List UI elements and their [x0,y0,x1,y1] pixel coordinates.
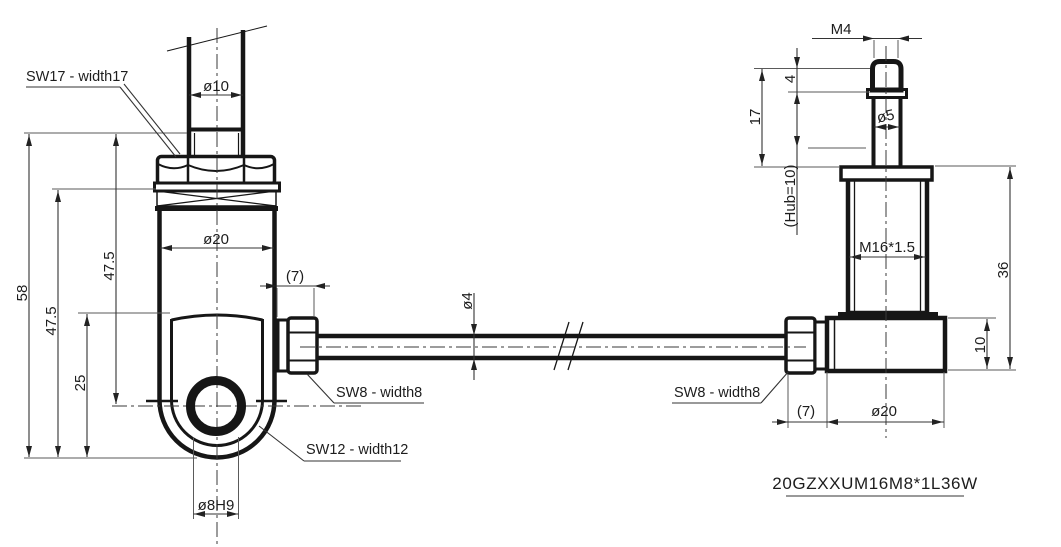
label-text-sw8-left: SW8 - width8 [336,385,422,401]
rod-end-side-view [146,26,317,458]
dim-text-hex-length-left: (7) [286,268,304,285]
dim-text-rod-to-hole-center: 47.5 [101,251,118,280]
cable-fitting-left-sw8 [278,318,317,373]
label-text-sw8-right: SW8 - width8 [674,385,760,401]
dim-text-block-height: 10 [972,337,989,354]
dim-hex-length-right-and-block-diameter: (7) ø20 [772,403,944,425]
dim-text-pin-extension: 17 [747,109,764,126]
dim-text-block-diameter: ø20 [871,403,897,420]
dim-hole-center-offset-25: 25 [72,314,90,457]
part-number: 20GZXXUM16M8*1L36W [772,474,977,493]
actuator-side-view [786,62,945,374]
dim-hex-length-left: (7) [260,268,330,289]
drawing-canvas: ø10 58 47.5 25 47.5 ø20 (7) [0,0,1061,547]
dim-text-cable-diameter: ø4 [459,292,476,310]
dim-text-shank-length: 47.5 [43,306,60,335]
dim-text-tip-thread: M4 [831,21,852,38]
dim-overall-length-58: 58 [14,134,32,457]
dim-pin-extension-17: 17 [747,69,765,166]
dim-text-body-diameter: ø20 [203,231,229,248]
cable-fitting-right-sw8 [786,318,827,373]
dim-housing-length-36: 36 [995,167,1013,369]
dim-housing-thread: M16*1.5 [849,239,926,260]
centerlines [112,28,886,545]
label-text-sw12: SW12 - width12 [306,442,408,458]
dim-text-housing-thread: M16*1.5 [859,239,915,256]
technical-drawing-sheet: ø10 58 47.5 25 47.5 ø20 (7) [0,0,1061,547]
hex-nut-sw17 [158,157,275,185]
part-number-block: 20GZXXUM16M8*1L36W [772,474,977,496]
dim-text-overall-length: 58 [14,285,31,302]
dim-text-housing-length: 36 [995,262,1012,279]
dim-shank-length-47-5: 47.5 [43,190,61,457]
cable-rod [317,322,788,370]
label-text-sw17: SW17 - width17 [26,69,128,85]
dim-text-stroke: (Hub=10) [782,165,799,228]
dim-block-height-10: 10 [972,319,990,369]
dim-text-hex-length-right: (7) [797,403,815,420]
dim-text-pin-diameter: ø5 [875,106,896,126]
label-wrench-flats-17: SW17 - width17 [26,69,180,157]
label-wrench-flats-8-right: SW8 - width8 [672,371,789,403]
dim-body-diameter-left: ø20 [160,231,274,251]
dim-tip-length-4: 4 (Hub=10) [782,48,800,235]
dim-text-tip-length: 4 [782,75,799,83]
dim-hole-bore: ø8H9 [194,497,239,517]
dim-rod-to-hole-center-47-5: 47.5 [101,134,119,404]
dim-text-hole-bore: ø8H9 [198,497,235,514]
label-wrench-flats-8-left: SW8 - width8 [307,374,424,403]
label-wrench-flats-12: SW12 - width12 [259,426,408,461]
dim-text-hole-center-offset: 25 [72,375,89,392]
dim-rod-diameter: ø10 [189,78,243,98]
dim-pin-diameter: ø5 [874,106,900,130]
dim-text-rod-diameter: ø10 [203,78,229,95]
dim-tip-thread-m4: M4 [812,21,922,42]
